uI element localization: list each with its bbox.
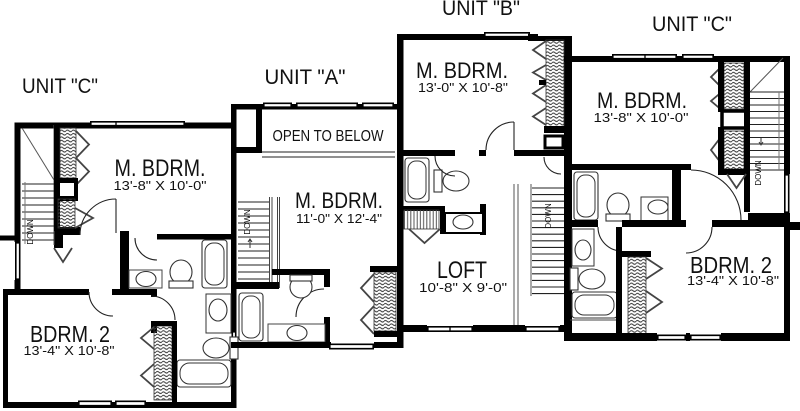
svg-text:DOWN: DOWN — [26, 219, 35, 245]
svg-text:UNIT "B": UNIT "B" — [442, 0, 520, 20]
svg-text:M. BDRM.: M. BDRM. — [295, 188, 383, 213]
svg-text:DOWN: DOWN — [243, 209, 252, 235]
svg-text:OPEN TO BELOW: OPEN TO BELOW — [273, 128, 385, 145]
svg-text:13'-8" X 10'-0": 13'-8" X 10'-0" — [114, 178, 207, 193]
svg-text:13'-4" X 10'-8": 13'-4" X 10'-8" — [24, 343, 115, 358]
svg-text:13'-4" X 10'-8": 13'-4" X 10'-8" — [687, 273, 779, 288]
svg-text:10'-8" X 9'-0": 10'-8" X 9'-0" — [419, 280, 507, 295]
svg-text:13'-0" X 10'-8": 13'-0" X 10'-8" — [418, 80, 508, 95]
svg-text:DOWN: DOWN — [754, 160, 763, 186]
svg-text:UNIT "C": UNIT "C" — [22, 75, 98, 98]
svg-text:11'-0" X 12'-4": 11'-0" X 12'-4" — [296, 211, 382, 226]
svg-text:UNIT "C": UNIT "C" — [652, 13, 732, 36]
svg-text:UNIT "A": UNIT "A" — [265, 66, 346, 89]
svg-text:13'-8" X 10'-0": 13'-8" X 10'-0" — [594, 110, 689, 125]
svg-text:DOWN: DOWN — [544, 203, 553, 229]
